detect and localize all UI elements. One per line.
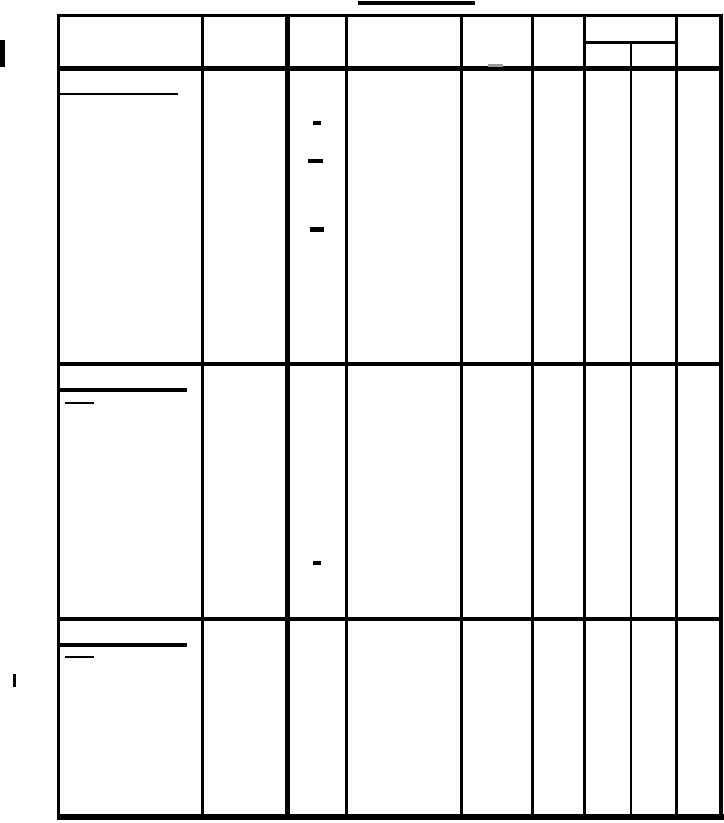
row1-col3-dash-1: [313, 121, 321, 125]
left-edge-bar: [0, 40, 5, 67]
column-line-3: [345, 14, 348, 820]
column-line-6: [583, 14, 586, 820]
row-divider-2: [57, 617, 721, 621]
table-left-border: [57, 14, 60, 820]
row1-col3-dash-2: [308, 159, 323, 163]
left-margin-tick: [13, 674, 16, 687]
table-top-border: [57, 14, 721, 17]
scanned-form-page: [0, 0, 724, 823]
row3-col1-short-underline: [65, 656, 94, 658]
row2-col1-underline: [58, 388, 187, 392]
table-right-border: [719, 14, 723, 820]
row2-col3-dash: [313, 561, 321, 565]
column-line-4: [460, 14, 463, 820]
row-divider-1: [57, 362, 721, 366]
column-line-2-thick: [285, 14, 290, 820]
row1-col3-dash-3: [310, 227, 324, 232]
column-line-5: [531, 14, 534, 820]
title-underline: [358, 1, 475, 5]
column-line-1: [201, 14, 204, 820]
column-line-7: [675, 14, 678, 820]
subcolumn-line: [630, 41, 632, 820]
header-bottom-border: [57, 66, 721, 71]
row1-col1-underline: [58, 93, 178, 95]
row3-col1-underline: [58, 643, 187, 647]
header-col5-dash: [488, 64, 503, 67]
table-bottom-border: [57, 814, 724, 820]
row2-col1-short-underline: [65, 402, 94, 404]
